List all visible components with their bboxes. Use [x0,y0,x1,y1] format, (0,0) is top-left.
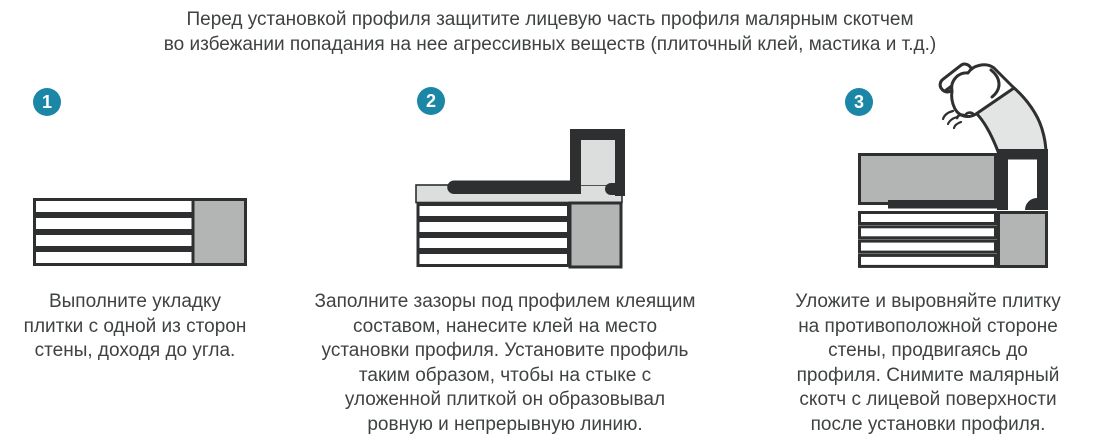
step-2-badge: 2 [417,87,445,115]
step-3-caption: Уложите и выровняйте плитку на противопо… [753,290,1100,437]
step-3-diagram [855,58,1055,270]
caption-line: составом, нанесите клей на место [290,315,720,340]
header-line-1: Перед установкой профиля защитите лицеву… [0,7,1100,32]
caption-line: Выполните укладку [15,290,255,315]
opposite-tile [860,155,996,204]
corner-block [999,213,1047,267]
header-note: Перед установкой профиля защитите лицеву… [0,7,1100,57]
step-1-diagram [33,198,248,268]
caption-line: после установки профиля. [753,413,1100,438]
caption-line: уложенной плиткой он образовывал [290,388,720,413]
caption-line: таким образом, чтобы на стыке с [290,364,720,389]
step-2-diagram [415,124,627,270]
step-2-caption: Заполните зазоры под профилем клеящим со… [290,290,720,437]
caption-line: профиля. Снимите малярный [753,364,1100,389]
step-1-caption: Выполните укладку плитки с одной из стор… [15,290,255,364]
caption-line: плитки с одной из сторон [15,315,255,340]
tile-stack [418,203,621,267]
caption-line: стены, доходя до угла. [15,339,255,364]
corner-block [570,203,621,267]
profile-flange [447,181,575,195]
tile-stack [35,200,246,265]
caption-line: установки профиля. Установите профиль [290,339,720,364]
tile-stack [860,213,1047,267]
caption-line: стены, продвигаясь до [753,339,1100,364]
caption-line: скотч с лицевой поверхности [753,388,1100,413]
step-1-badge: 1 [33,88,61,116]
instruction-panel: Перед установкой профиля защитите лицеву… [0,0,1100,441]
profile-interior [581,138,615,185]
header-line-2: во избежании попадания на нее агрессивны… [0,32,1100,57]
caption-line: на противоположной стороне [753,315,1100,340]
caption-line: Заполните зазоры под профилем клеящим [290,290,720,315]
corner-block [193,200,246,265]
caption-line: ровную и непрерывную линию. [290,413,720,438]
caption-line: Уложите и выровняйте плитку [753,290,1100,315]
profile-foot-nub [605,183,623,195]
profile-flange [888,200,997,209]
